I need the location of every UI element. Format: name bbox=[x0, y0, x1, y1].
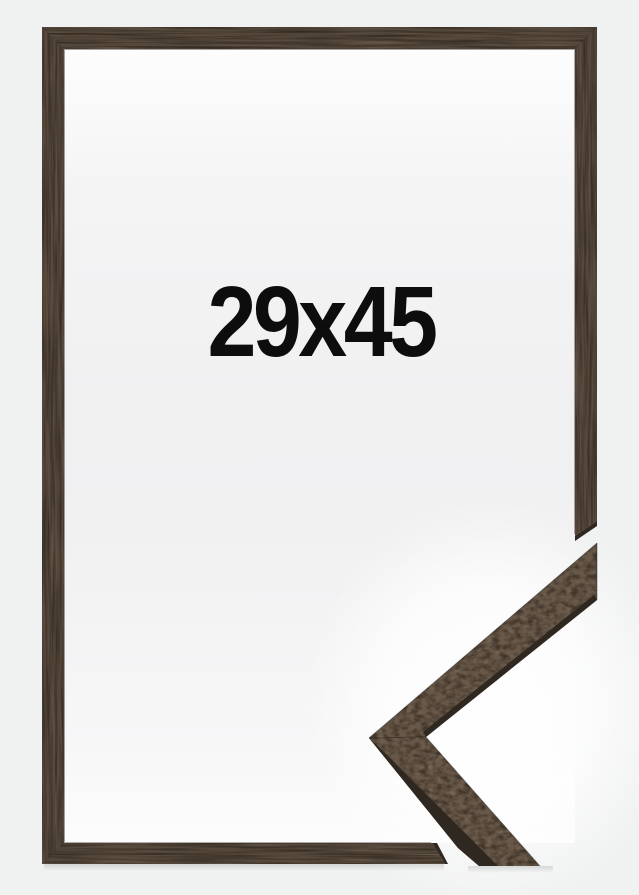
size-label: 29x45 bbox=[207, 266, 435, 377]
product-image: 29x45 bbox=[0, 0, 639, 895]
frame-grain-top bbox=[42, 27, 597, 49]
frame-drop-shadow bbox=[44, 864, 444, 871]
corner-drop-shadow bbox=[468, 866, 553, 873]
frame-grain-right bbox=[575, 27, 597, 536]
frame-grain-bottom bbox=[42, 843, 445, 864]
frame-grain-left bbox=[42, 27, 64, 864]
frame-mockup-graphic: 29x45 bbox=[0, 0, 639, 895]
